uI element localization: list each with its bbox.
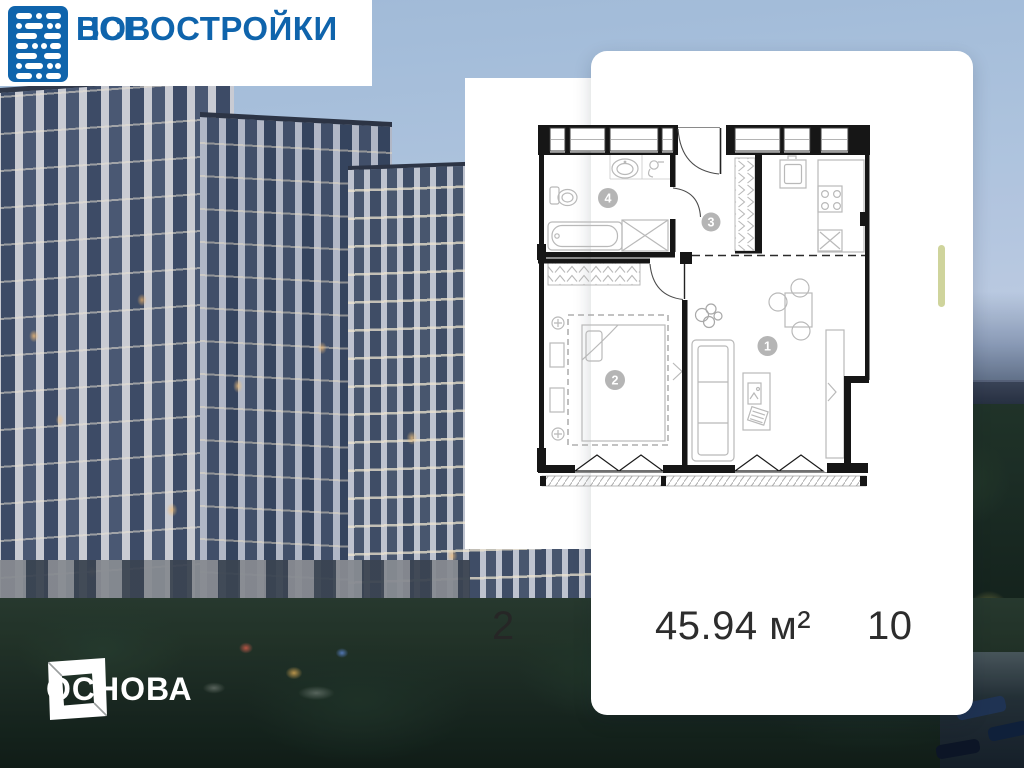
walls bbox=[537, 125, 870, 486]
site-logo[interactable]: ВСЕ НОВОСТРОЙКИ bbox=[0, 0, 372, 86]
building-number: 2 bbox=[492, 606, 515, 646]
developer-name: ОСНОВА bbox=[46, 671, 193, 708]
room-2-label: 2 bbox=[612, 373, 619, 387]
apartment-area: 45.94 м² bbox=[655, 606, 811, 646]
room-4-label: 4 bbox=[605, 191, 612, 205]
apartment-floor: 10 bbox=[867, 606, 913, 646]
fixtures bbox=[548, 155, 864, 461]
page: 2 bbox=[0, 0, 1024, 768]
room-1-label: 1 bbox=[764, 339, 771, 353]
balcony-strip bbox=[542, 476, 866, 486]
brand-line-2: НОВОСТРОЙКИ bbox=[76, 15, 338, 43]
floor-plan: 1 2 3 4 bbox=[530, 112, 880, 502]
room-3-label: 3 bbox=[708, 215, 715, 229]
windows bbox=[550, 128, 848, 151]
brand-mark-icon bbox=[8, 6, 68, 82]
card-scrollbar[interactable] bbox=[938, 245, 945, 307]
developer-logo[interactable]: ОСНОВА bbox=[46, 656, 276, 722]
